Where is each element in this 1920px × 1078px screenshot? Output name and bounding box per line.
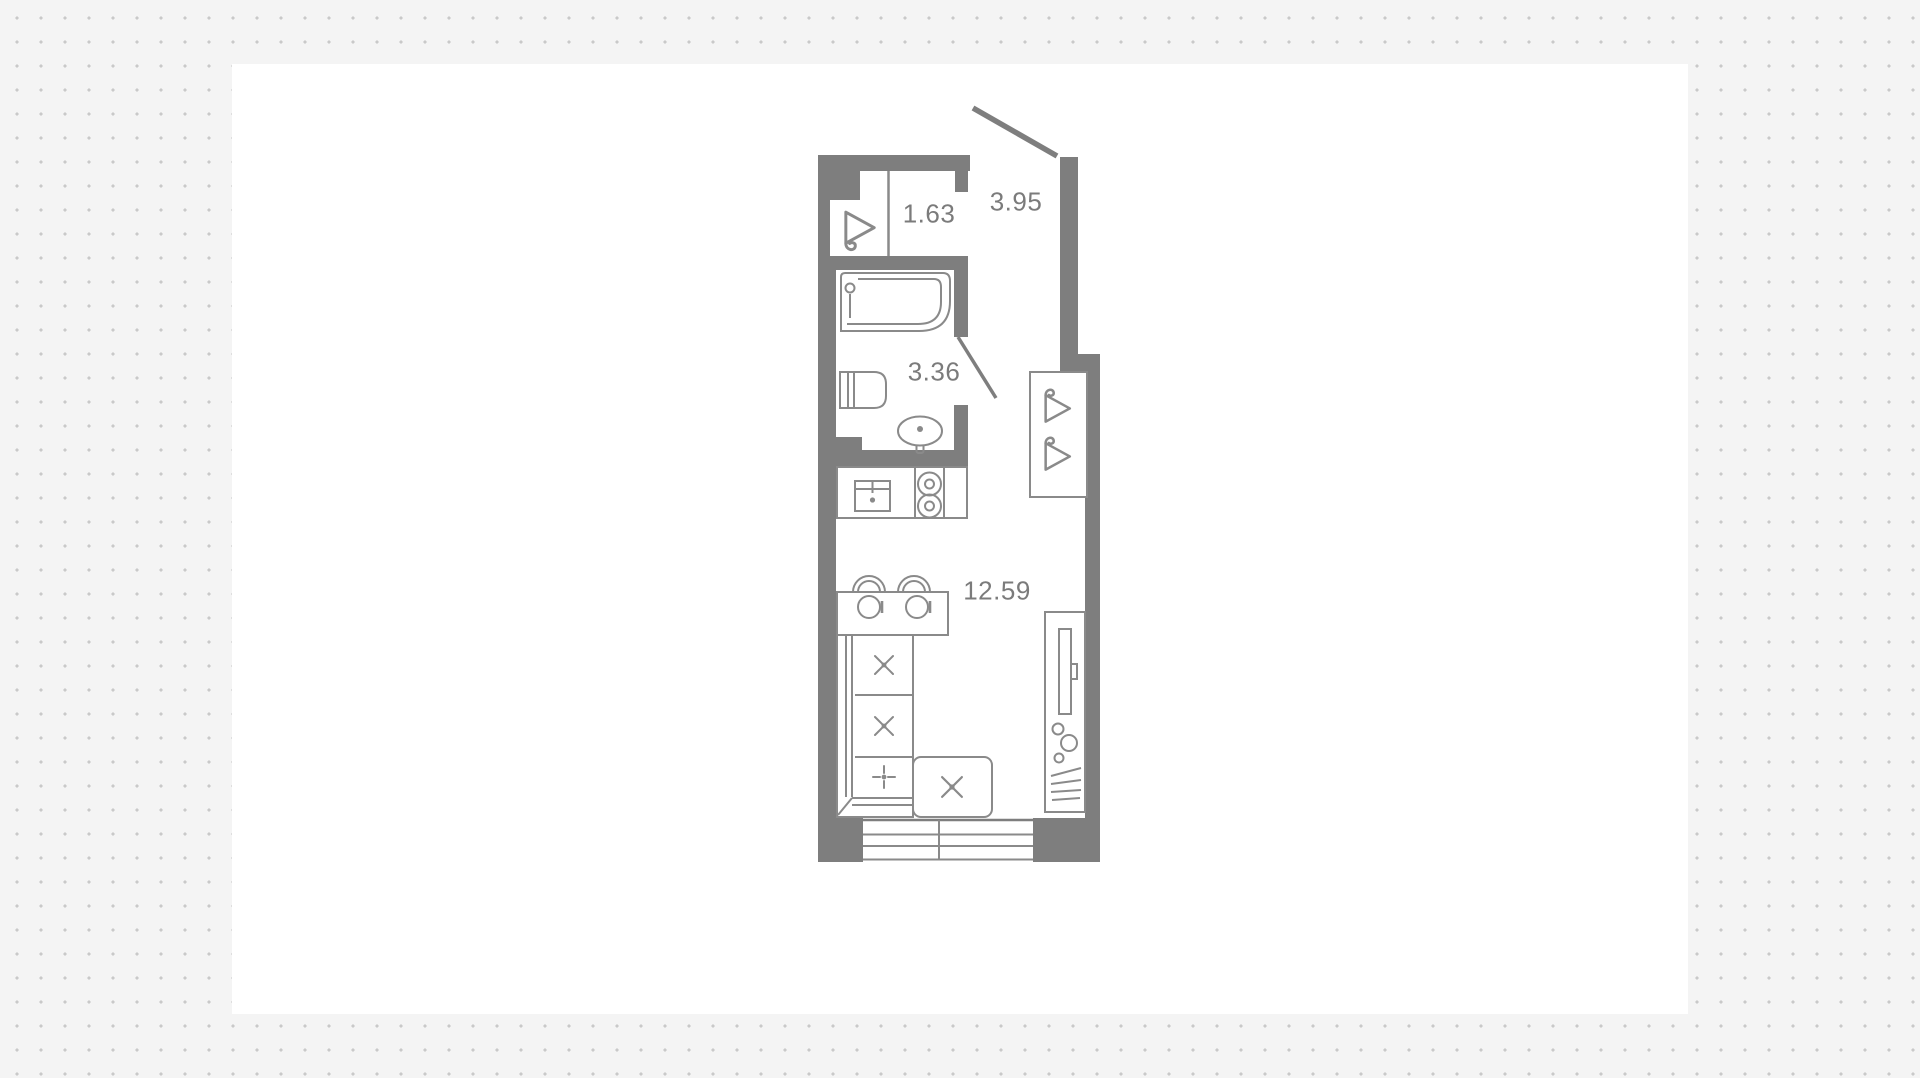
corner-sofa-icon (837, 635, 913, 817)
chair-icon (853, 576, 930, 592)
entry-door-leaf (973, 108, 1057, 156)
wall-pier-bottom-right (1033, 818, 1100, 862)
bathtub-icon (841, 273, 950, 331)
wall-bath-bottom-step (836, 437, 862, 450)
area-label-wardrobe-niche: 1.63 (903, 199, 956, 230)
wall-top (818, 155, 970, 171)
wall-closet-bottom (818, 256, 968, 270)
wall-bath-right-upper (954, 270, 968, 337)
ottoman-icon (913, 757, 992, 817)
window-icon (863, 820, 1033, 860)
area-label-living-room: 12.59 (963, 576, 1031, 607)
wall-right-step (1060, 354, 1100, 372)
wall-closet-jamb (955, 171, 968, 192)
tv-console-icon (1045, 612, 1085, 812)
wall-left-lower (818, 256, 836, 817)
wardrobe-icon (1030, 372, 1087, 497)
hanger-icon (846, 212, 874, 249)
floor-plan-drawing (805, 100, 1115, 870)
bathroom-door-leaf (958, 337, 996, 398)
dining-table-icon (837, 592, 948, 635)
area-label-bathroom: 3.36 (908, 357, 961, 388)
kitchen-counter (837, 467, 967, 518)
wall-left-upper (818, 155, 830, 256)
wall-bath-right-lower (954, 405, 968, 450)
wall-right-upper (1060, 157, 1078, 354)
wall-closet-step (830, 171, 860, 200)
washbasin-icon (898, 417, 942, 454)
wall-bath-bottom (818, 450, 968, 467)
floor-plan (805, 100, 1115, 870)
toilet-icon (840, 372, 886, 408)
area-label-hallway: 3.95 (990, 187, 1043, 218)
wall-pier-bottom-left (818, 817, 863, 862)
